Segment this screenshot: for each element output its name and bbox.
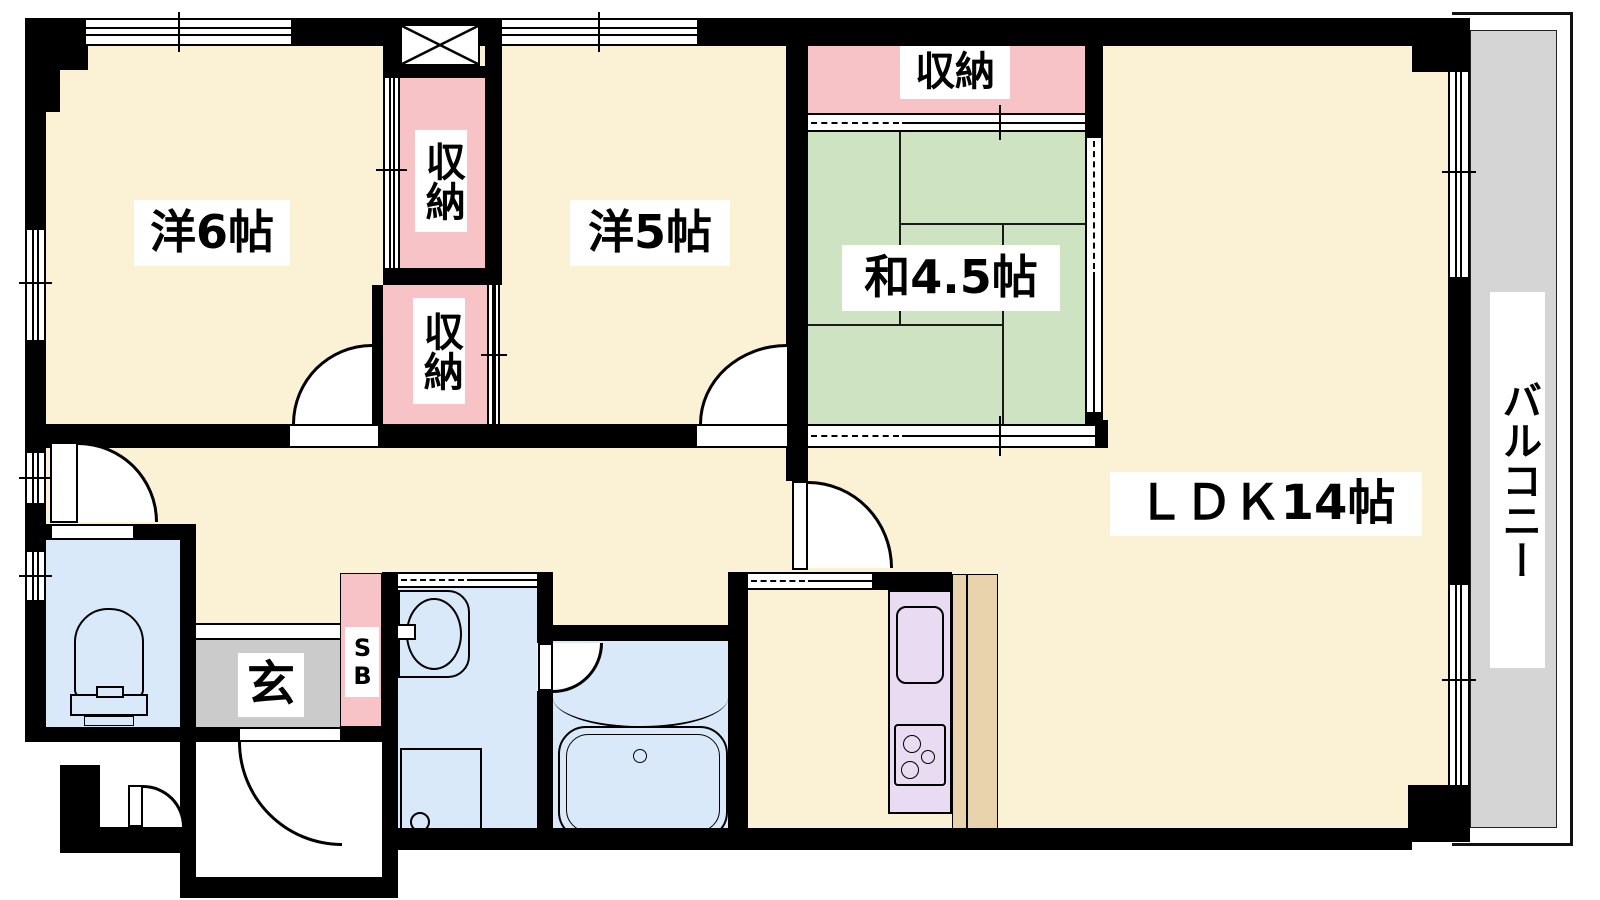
entrance-label: 玄 [238,653,304,717]
toilet-bowl [74,608,144,698]
kitchen-sink [896,606,944,684]
sliding-door [902,113,1085,132]
bathtub-drain [633,749,647,763]
room-label-japanese45: 和4.5帖 [842,245,1060,311]
door-opening [697,424,787,448]
sliding-door [808,113,902,132]
window-tick [1442,679,1476,681]
window-tick [19,282,52,284]
window [1448,72,1470,277]
bath-door-leaf [538,643,553,691]
wall [383,18,400,78]
door-leaf [128,785,143,827]
pipe-shaft [400,24,480,66]
closet-label-upper: 収納 [415,130,467,232]
wall [378,424,697,448]
sliding-door [467,572,537,588]
door-opening [52,524,133,540]
wall [372,285,383,424]
stove-burner [901,761,919,779]
floor-plan: 洋6帖 洋5帖 和4.5帖 ＬＤＫ14帖 収納 収納 収納 バルコニー 玄 SB [0,0,1600,900]
wall [25,18,46,230]
window-tick [19,575,52,577]
wall [1412,18,1470,72]
wall [728,572,748,845]
sliding-door [1085,272,1103,412]
toilet-base [84,716,134,726]
tatami-line [808,324,1004,326]
wall [537,572,553,643]
room-label-ldk: ＬＤＫ14帖 [1110,472,1422,536]
window [25,230,46,340]
door-opening [290,424,378,448]
wall [872,572,952,590]
door-tick [481,354,507,356]
wall [25,727,238,742]
door-leaf [50,442,78,523]
wall [60,765,100,828]
wall [180,524,196,742]
door-tick [999,105,1001,140]
kitchen-stove [894,724,946,786]
closet-label-lower: 収納 [413,298,465,404]
balcony-outline-top [1452,12,1573,15]
wall [400,66,485,78]
room-label-western5: 洋5帖 [570,200,730,266]
window-tick [178,12,180,52]
wall [537,691,553,845]
closet-door [383,78,400,268]
balcony-outline-right [1570,12,1573,846]
wall [25,600,46,742]
room-label-western6: 洋6帖 [134,200,290,266]
wall [786,30,808,481]
sliding-door [398,572,467,588]
balcony-label: バルコニー [1490,292,1545,668]
sliding-door [1085,138,1103,272]
genkan-step [196,623,340,640]
wall [1095,420,1108,448]
window [86,18,291,46]
balcony-outline-bottom [1452,843,1573,846]
sliding-door [808,424,902,448]
kitchen-counter-side-line [966,574,968,845]
wall [25,524,52,540]
window-tick [19,477,52,479]
closet-label-top: 収納 [900,46,1010,99]
tatami-line [900,223,1085,225]
window [1448,585,1470,785]
wall [485,18,502,285]
wall [342,727,382,742]
wall [180,742,196,878]
window-tick [598,12,600,52]
door-leaf [792,481,808,570]
stove-burner [903,735,921,753]
wall [1085,30,1103,138]
wall [382,828,1412,850]
shoebox-label: SB [345,627,379,697]
x-mark-icon [402,26,478,64]
washbasin-tap [396,624,416,640]
door-tick [999,416,1001,456]
door-tick [376,169,407,171]
sliding-door [748,572,808,590]
wall [383,268,485,285]
wall [553,625,730,641]
wall [1408,785,1470,842]
wall [180,877,398,898]
stove-burner [921,750,935,764]
toilet-tank-notch [96,686,124,698]
window-tick [1442,171,1476,173]
kitchen-counter-side [952,574,998,845]
wall [1448,277,1470,585]
wall [60,827,190,853]
sliding-door [808,572,872,590]
entry-door-leaf [238,727,342,742]
